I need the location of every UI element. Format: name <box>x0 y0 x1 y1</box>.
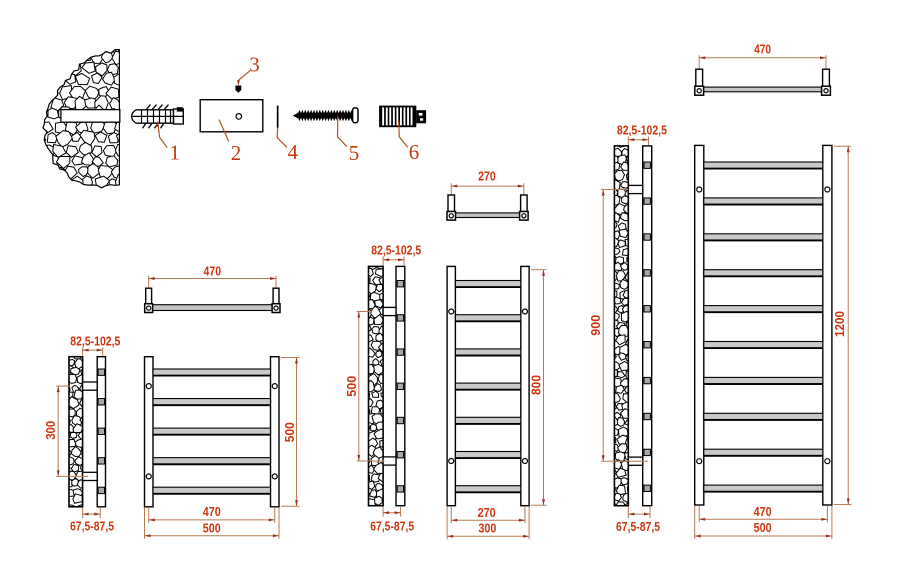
svg-text:5: 5 <box>349 141 360 165</box>
svg-text:1200: 1200 <box>832 311 847 337</box>
svg-text:470: 470 <box>204 263 222 278</box>
svg-text:500: 500 <box>203 520 221 535</box>
svg-text:67,5-87,5: 67,5-87,5 <box>70 518 114 533</box>
svg-text:300: 300 <box>43 421 58 440</box>
svg-text:270: 270 <box>478 169 496 184</box>
svg-text:800: 800 <box>529 375 544 395</box>
svg-text:470: 470 <box>754 42 771 57</box>
svg-text:2: 2 <box>231 141 242 165</box>
svg-text:4: 4 <box>288 140 299 164</box>
svg-text:82,5-102,5: 82,5-102,5 <box>70 333 120 348</box>
svg-text:500: 500 <box>282 422 297 442</box>
svg-text:500: 500 <box>754 520 772 535</box>
svg-text:470: 470 <box>754 504 772 519</box>
svg-text:6: 6 <box>409 140 420 164</box>
svg-text:500: 500 <box>344 376 359 397</box>
svg-text:270: 270 <box>478 505 496 520</box>
svg-text:82,5-102,5: 82,5-102,5 <box>617 123 667 138</box>
svg-text:67,5-87,5: 67,5-87,5 <box>370 518 414 533</box>
svg-text:82,5-102,5: 82,5-102,5 <box>371 243 421 258</box>
svg-text:3: 3 <box>249 53 260 77</box>
svg-text:900: 900 <box>588 315 603 336</box>
svg-text:470: 470 <box>203 504 221 519</box>
svg-text:1: 1 <box>170 141 181 165</box>
svg-text:67,5-87,5: 67,5-87,5 <box>616 519 660 534</box>
svg-text:300: 300 <box>478 520 496 535</box>
